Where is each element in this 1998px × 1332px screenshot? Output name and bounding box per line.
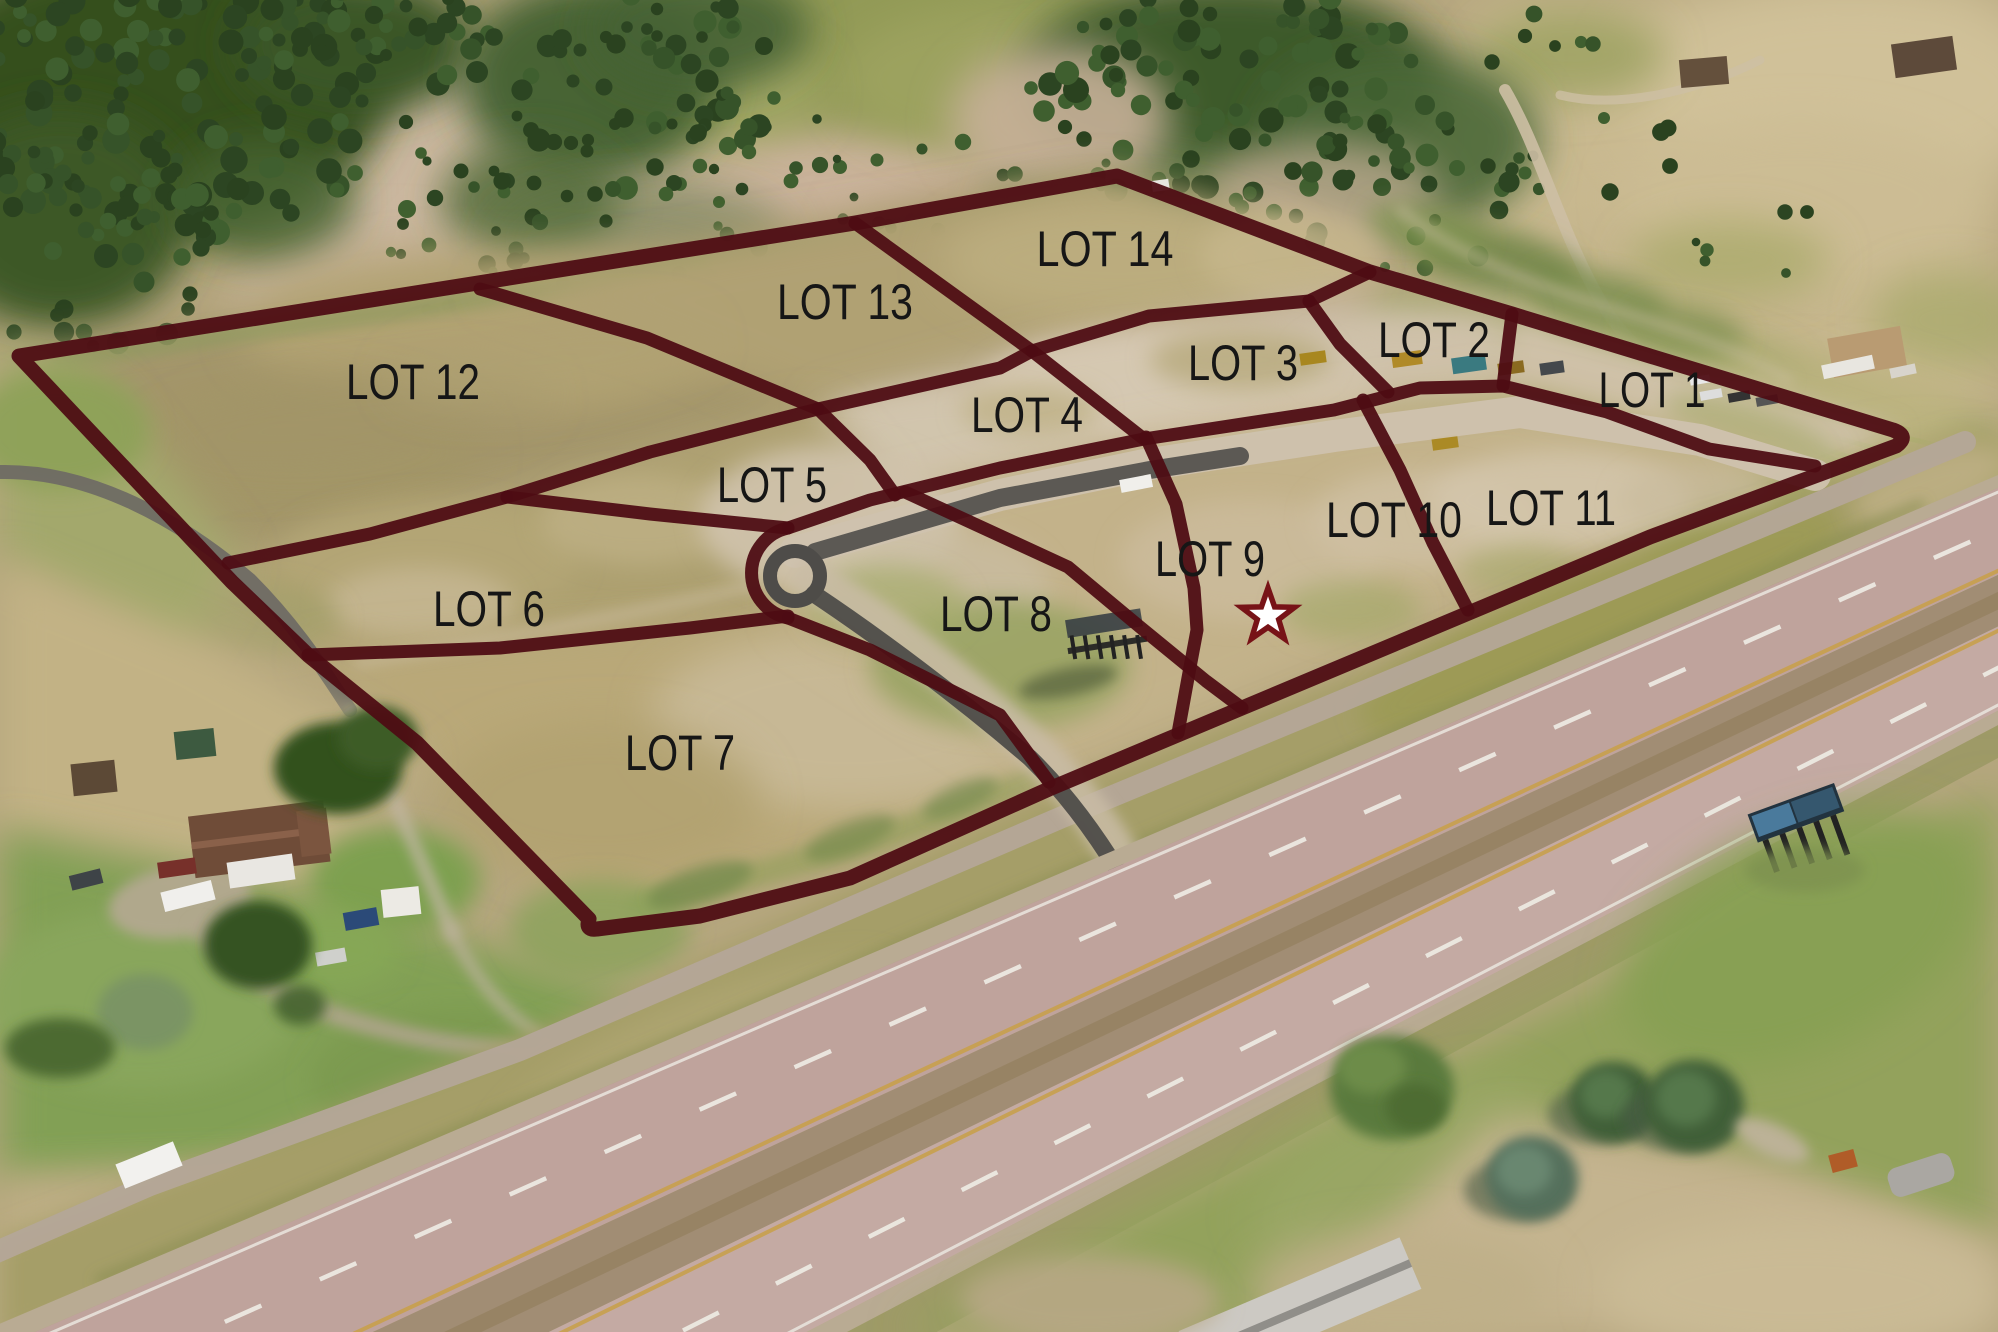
svg-text:LOT 4: LOT 4 [971,387,1083,443]
svg-text:LOT 8: LOT 8 [940,586,1052,642]
svg-text:LOT 5: LOT 5 [717,457,827,513]
svg-text:LOT 9: LOT 9 [1155,531,1265,587]
svg-text:LOT 2: LOT 2 [1378,312,1490,368]
svg-text:LOT 12: LOT 12 [346,354,480,410]
svg-text:LOT 13: LOT 13 [777,274,913,330]
svg-text:LOT 11: LOT 11 [1486,480,1616,536]
svg-text:LOT 6: LOT 6 [433,581,545,637]
svg-text:LOT 3: LOT 3 [1188,335,1298,391]
svg-text:LOT 1: LOT 1 [1599,362,1706,418]
svg-text:LOT 7: LOT 7 [625,725,735,781]
svg-text:LOT 14: LOT 14 [1037,221,1174,277]
svg-text:LOT 10: LOT 10 [1326,492,1462,548]
